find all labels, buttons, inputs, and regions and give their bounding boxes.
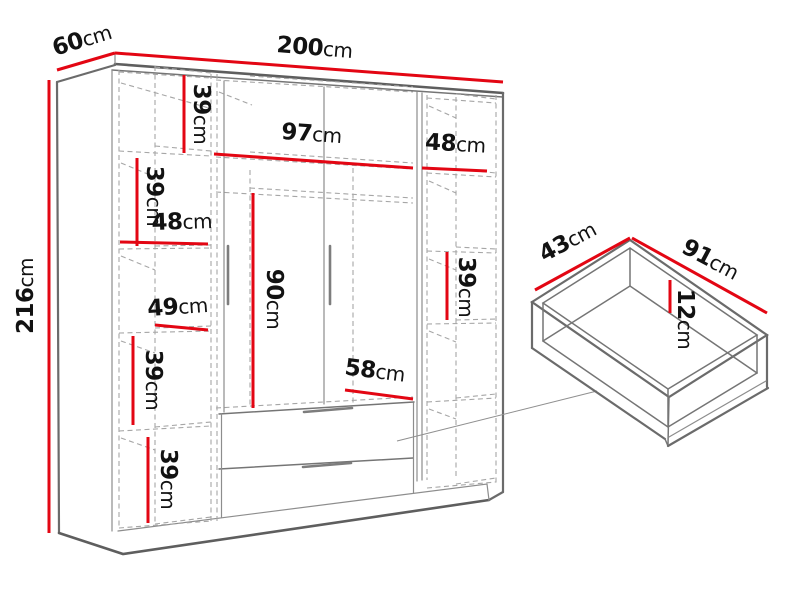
dim-label-right-width: 48cm [424, 129, 486, 158]
wardrobe-drawers [219, 402, 414, 517]
dim-label-hanging: 90cm [261, 269, 287, 330]
dim-label-height: 216cm [13, 258, 39, 334]
furniture-dimension-diagram: 60cm 200cm 216cm 39cm 39cm 48cm 49cm 39c… [0, 0, 800, 600]
dimension-labels: 60cm 200cm 216cm 39cm 39cm 48cm 49cm 39c… [13, 19, 743, 509]
dim-label-drawer-width: 91cm [677, 234, 743, 285]
dim-label-right-shelf: 39cm [453, 257, 479, 318]
dim-label-drawer-height: 12cm [672, 289, 698, 350]
dim-line-left-width [120, 242, 208, 244]
leader-line [397, 391, 597, 441]
dim-label-center-width: 97cm [280, 119, 342, 149]
dim-label-left-shelf-1: 39cm [188, 84, 214, 145]
dim-label-left-shelf-3: 39cm [140, 350, 166, 411]
dim-label-left-shelf-4: 39cm [155, 449, 181, 510]
dim-line-drawer-section [345, 390, 413, 399]
dim-line-right-width [422, 168, 487, 171]
diagram-canvas: 60cm 200cm 216cm 39cm 39cm 48cm 49cm 39c… [0, 0, 800, 600]
dim-label-left-width: 48cm [151, 208, 212, 236]
dim-label-width: 200cm [276, 32, 354, 64]
dim-line-left-width-2 [155, 325, 208, 330]
dim-label-left-width-2: 49cm [146, 292, 208, 322]
